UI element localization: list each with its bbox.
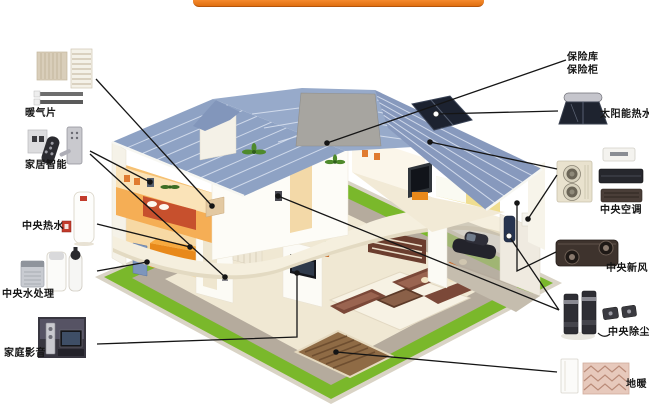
label-radiator: 暖气片 — [25, 108, 57, 120]
label-central-vacuum: 中央除尘 — [608, 327, 649, 339]
label-central-fresh-air: 中央新风 — [606, 263, 648, 275]
central-ac-thumbnail — [557, 148, 643, 202]
label-safe-line1: 保险库 — [567, 52, 599, 64]
ac-duct-unit2-icon — [601, 189, 642, 202]
water-treatment-thumbnail — [21, 247, 82, 291]
label-solar-hot-water: 太阳能热水 — [600, 109, 649, 121]
floor-heating-thumbnail — [561, 359, 629, 394]
smart-home-system-diagram: 暖气片 家居智能 中央热水 中央水处理 家庭影音 保险库 保险柜 太阳能热水 中… — [0, 0, 649, 414]
door-lock-icon — [67, 127, 82, 164]
label-home-theater: 家庭影音 — [4, 348, 46, 360]
water-heater-thumbnail — [62, 192, 94, 246]
label-central-hot-water: 中央热水 — [22, 221, 64, 233]
radiator-thumbnail — [34, 49, 92, 105]
cutaway-ceiling — [296, 93, 381, 146]
label-floor-heating: 地暖 — [626, 379, 647, 391]
label-central-water-treatment: 中央水处理 — [2, 289, 55, 301]
house-illustration — [0, 0, 649, 414]
label-safe-line2: 保险柜 — [567, 65, 599, 77]
label-smart-home: 家居智能 — [25, 160, 67, 172]
label-central-ac: 中央空调 — [600, 205, 642, 217]
